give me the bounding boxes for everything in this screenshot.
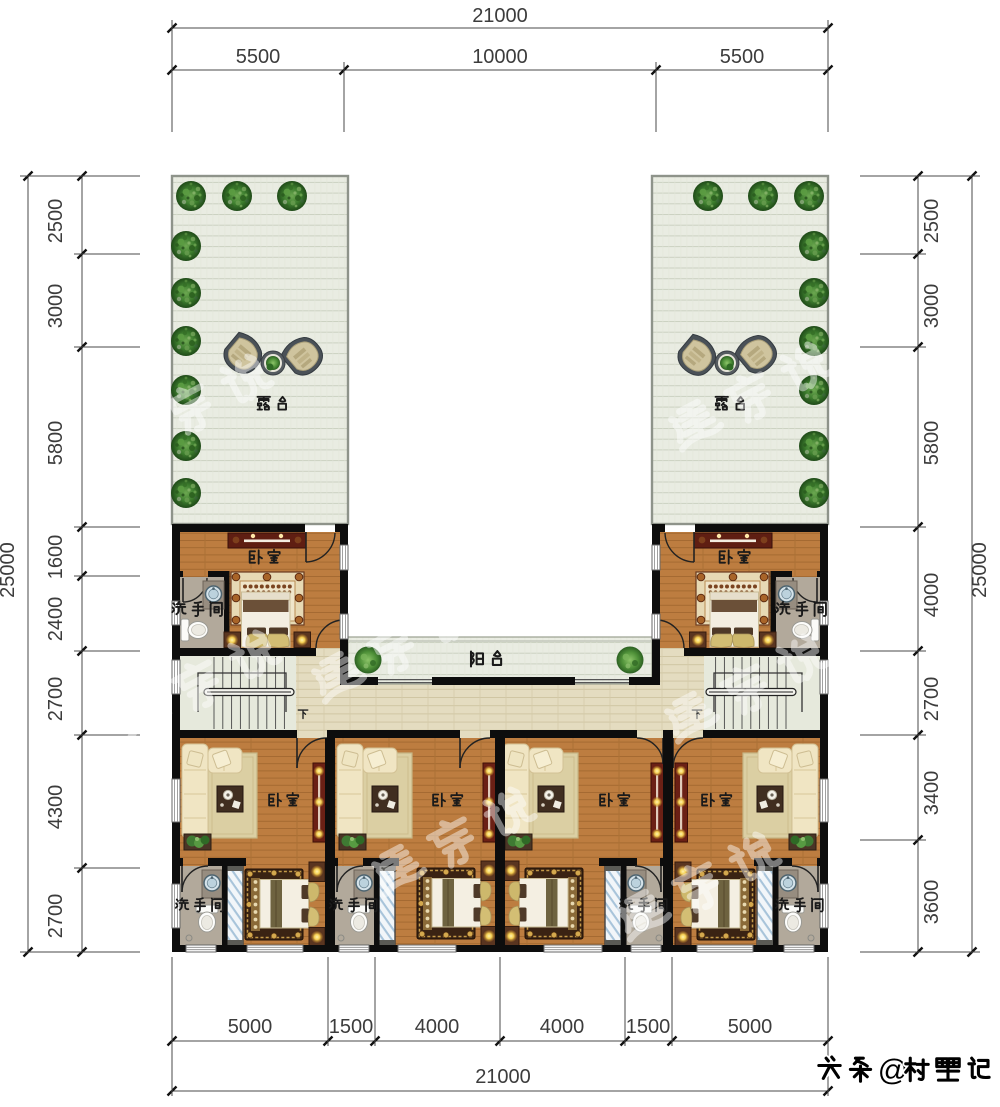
svg-text:5500: 5500 xyxy=(236,46,281,68)
svg-text:2500: 2500 xyxy=(45,199,67,244)
svg-text:25000: 25000 xyxy=(0,542,19,598)
svg-text:21000: 21000 xyxy=(475,1066,531,1088)
svg-text:21000: 21000 xyxy=(472,5,528,27)
svg-text:1600: 1600 xyxy=(45,535,67,580)
svg-text:2700: 2700 xyxy=(921,677,943,722)
svg-text:4000: 4000 xyxy=(415,1016,460,1038)
svg-text:5000: 5000 xyxy=(228,1016,273,1038)
svg-text:5800: 5800 xyxy=(45,421,67,466)
svg-text:4300: 4300 xyxy=(45,785,67,830)
svg-text:4000: 4000 xyxy=(921,573,943,618)
svg-text:3000: 3000 xyxy=(921,284,943,329)
svg-text:1500: 1500 xyxy=(626,1016,671,1038)
svg-text:5500: 5500 xyxy=(720,46,765,68)
svg-text:5800: 5800 xyxy=(921,421,943,466)
svg-text:2700: 2700 xyxy=(45,894,67,939)
svg-text:2700: 2700 xyxy=(45,677,67,722)
svg-text:2500: 2500 xyxy=(921,199,943,244)
svg-text:5000: 5000 xyxy=(728,1016,773,1038)
svg-text:4000: 4000 xyxy=(540,1016,585,1038)
svg-text:3600: 3600 xyxy=(921,880,943,925)
svg-text:3400: 3400 xyxy=(921,771,943,816)
svg-text:10000: 10000 xyxy=(472,46,528,68)
svg-text:1500: 1500 xyxy=(329,1016,374,1038)
svg-text:3000: 3000 xyxy=(45,284,67,329)
svg-text:25000: 25000 xyxy=(969,542,991,598)
svg-text:2400: 2400 xyxy=(45,597,67,642)
